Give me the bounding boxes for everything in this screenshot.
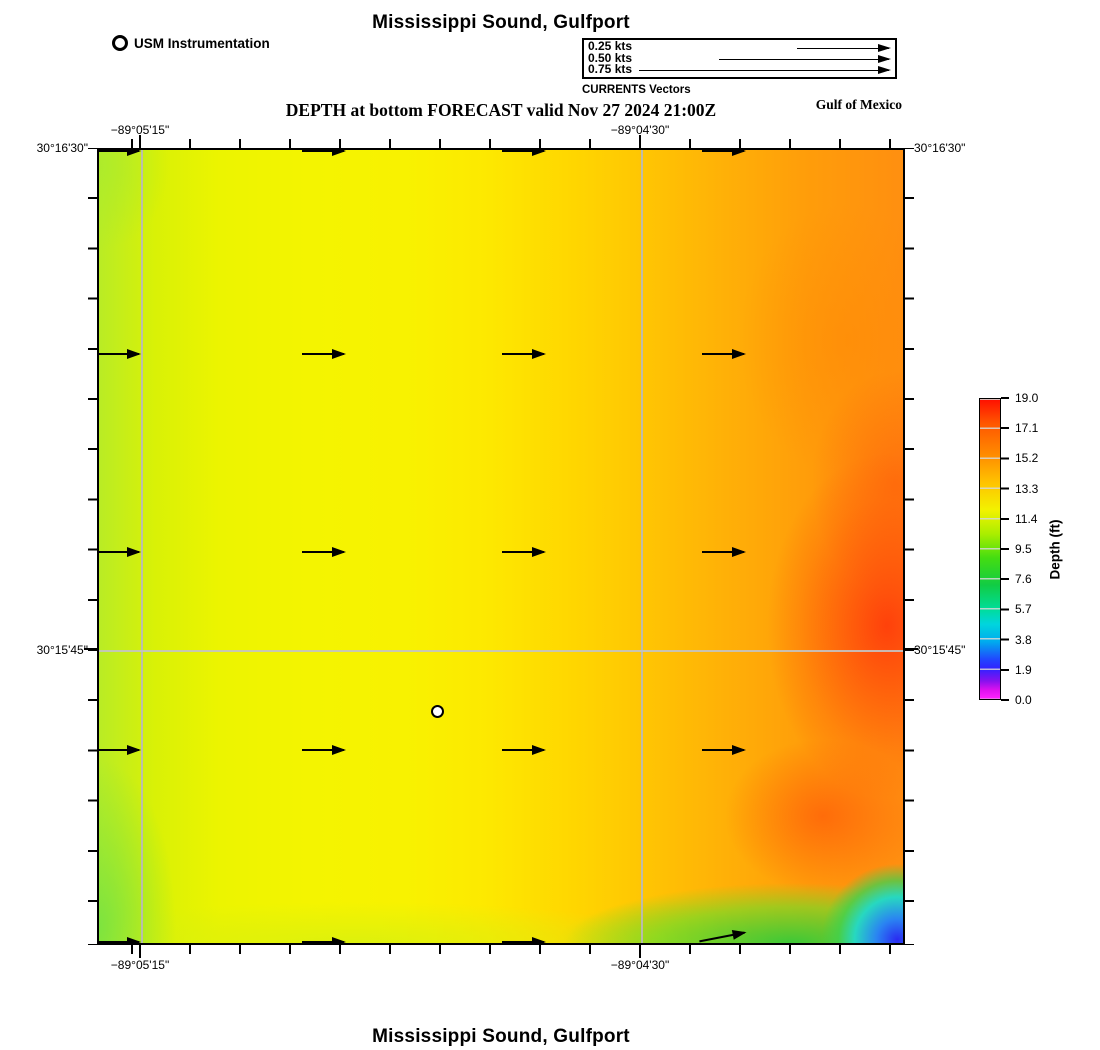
page-title: Mississippi Sound, Gulfport [97, 12, 905, 34]
current-vector-arrow [97, 551, 139, 553]
current-vector-arrow [502, 749, 544, 751]
current-vector-arrow [99, 941, 139, 943]
station-marker [431, 705, 444, 718]
gridline-longitude [641, 150, 643, 943]
lat-label-south-left: 30°15'45" [8, 643, 88, 657]
lon-label-west-bottom: −89°05'15" [70, 958, 210, 972]
major-tick [905, 648, 918, 650]
major-tick [639, 945, 641, 958]
current-vector-arrow [302, 749, 344, 751]
lat-label-north-right: 30°16'30" [914, 141, 994, 155]
gridline-longitude [141, 150, 143, 943]
depth-colorbar [979, 398, 1001, 700]
vector-scale-arrow-icon [797, 48, 889, 49]
station-legend: USM Instrumentation [112, 35, 270, 51]
current-vector-arrow [302, 551, 344, 553]
bottom-title: Mississippi Sound, Gulfport [97, 1026, 905, 1048]
major-tick [139, 945, 141, 958]
current-vector-arrow [502, 353, 544, 355]
colorbar-tick-label: 7.6 [1015, 572, 1032, 586]
major-tick [639, 135, 641, 148]
current-vector-arrow [702, 749, 744, 751]
colorbar-title-wrap: Depth (ft) [1032, 398, 1078, 700]
current-vector-arrow [502, 551, 544, 553]
forecast-figure: Mississippi Sound, Gulfport DEPTH at bot… [0, 0, 1100, 1050]
region-label: Gulf of Mexico [690, 97, 902, 113]
colorbar-tick-label: 5.7 [1015, 602, 1032, 616]
colorbar-tick-label: 1.9 [1015, 663, 1032, 677]
colorbar-ticks [1001, 397, 1009, 701]
gridline-latitude [99, 650, 903, 652]
lat-label-north-left: 30°16'30" [8, 141, 88, 155]
axis-ticks-left [88, 148, 97, 945]
axis-ticks-right [905, 148, 914, 945]
current-vector-arrow [702, 150, 744, 152]
colorbar-tick-label: 0.0 [1015, 693, 1032, 707]
lon-label-east-bottom: −89°04'30" [570, 958, 710, 972]
map-panel [97, 148, 905, 945]
colorbar-tick-label: 3.8 [1015, 633, 1032, 647]
current-vector-arrow [502, 941, 544, 943]
current-vector-arrow [302, 941, 344, 943]
station-marker-icon [112, 35, 128, 51]
currents-legend-caption: CURRENTS Vectors [582, 84, 691, 96]
axis-ticks-bottom [97, 945, 905, 954]
currents-legend-box: 0.25 kts0.50 kts0.75 kts [582, 38, 897, 79]
edge-vector-row [99, 936, 903, 943]
currents-speed-label: 0.75 kts [588, 64, 632, 76]
current-vector-arrow [99, 150, 139, 152]
major-tick [84, 648, 97, 650]
colorbar-tick-label: 9.5 [1015, 542, 1032, 556]
current-vector-arrow [502, 150, 544, 152]
current-vector-arrow [302, 150, 344, 152]
major-tick [139, 135, 141, 148]
depth-field-map [97, 148, 905, 945]
edge-vector-row [99, 150, 903, 156]
vector-scale-arrow-icon [639, 70, 889, 71]
currents-speed-labels: 0.25 kts0.50 kts0.75 kts [588, 41, 632, 76]
colorbar-tick-lines [980, 399, 1000, 699]
current-vector-arrow [97, 749, 139, 751]
current-vector-arrow [302, 353, 344, 355]
current-vector-arrow [702, 353, 744, 355]
axis-ticks-top [97, 139, 905, 148]
colorbar-title: Depth (ft) [1048, 519, 1063, 579]
current-vector-arrow [702, 551, 744, 553]
vector-scale-arrow-icon [719, 59, 889, 60]
station-legend-label: USM Instrumentation [134, 36, 270, 51]
current-vector-arrow [97, 353, 139, 355]
